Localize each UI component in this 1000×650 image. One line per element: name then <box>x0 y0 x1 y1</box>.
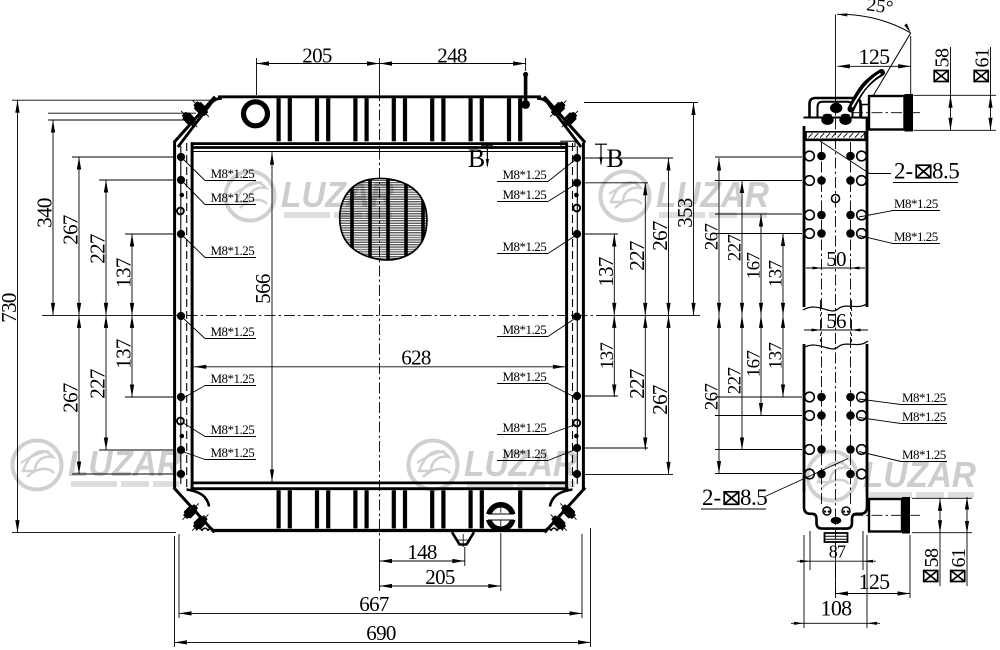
svg-text:137: 137 <box>597 343 618 370</box>
svg-text:628: 628 <box>401 346 431 370</box>
svg-text:M8*1.25: M8*1.25 <box>211 190 255 205</box>
svg-text:M8*1.25: M8*1.25 <box>211 243 255 258</box>
svg-text:87: 87 <box>829 542 846 562</box>
svg-text:148: 148 <box>407 540 437 564</box>
svg-text:267: 267 <box>702 384 723 411</box>
svg-text:205: 205 <box>425 565 455 589</box>
svg-text:58: 58 <box>931 48 953 68</box>
svg-text:227: 227 <box>725 235 746 262</box>
svg-text:M8*1.25: M8*1.25 <box>503 239 547 254</box>
svg-text:M8*1.25: M8*1.25 <box>503 167 547 182</box>
svg-text:58: 58 <box>921 548 943 568</box>
svg-text:353: 353 <box>673 198 697 228</box>
svg-text:227: 227 <box>86 234 110 264</box>
svg-text:227: 227 <box>725 368 746 395</box>
svg-text:267: 267 <box>648 221 672 251</box>
svg-text:2-: 2- <box>702 485 721 510</box>
svg-text:167: 167 <box>744 351 765 378</box>
svg-text:125: 125 <box>859 569 891 594</box>
svg-text:690: 690 <box>366 621 396 645</box>
svg-text:137: 137 <box>112 258 136 288</box>
svg-text:248: 248 <box>437 43 467 67</box>
svg-text:M8*1.25: M8*1.25 <box>503 187 547 202</box>
svg-text:167: 167 <box>744 253 765 280</box>
svg-text:267: 267 <box>59 215 83 245</box>
svg-text:340: 340 <box>33 198 57 228</box>
svg-text:667: 667 <box>359 592 389 616</box>
svg-text:M8*1.25: M8*1.25 <box>503 420 547 435</box>
svg-text:M8*1.25: M8*1.25 <box>211 166 255 181</box>
svg-text:267: 267 <box>702 224 723 251</box>
svg-text:227: 227 <box>625 369 649 399</box>
svg-text:61: 61 <box>971 49 993 68</box>
svg-text:61: 61 <box>948 549 970 568</box>
svg-text:137: 137 <box>112 339 136 369</box>
svg-text:M8*1.25: M8*1.25 <box>894 229 938 244</box>
svg-text:125: 125 <box>859 44 891 69</box>
svg-text:M8*1.25: M8*1.25 <box>503 446 547 461</box>
svg-text:137: 137 <box>766 343 787 370</box>
svg-text:8.5: 8.5 <box>932 159 959 184</box>
svg-text:267: 267 <box>59 383 83 413</box>
svg-text:2-: 2- <box>894 159 913 184</box>
svg-text:M8*1.25: M8*1.25 <box>503 322 547 337</box>
svg-text:8.5: 8.5 <box>740 485 767 510</box>
svg-text:205: 205 <box>302 43 332 67</box>
svg-text:M8*1.25: M8*1.25 <box>211 324 255 339</box>
svg-text:M8*1.25: M8*1.25 <box>902 447 946 462</box>
svg-text:M8*1.25: M8*1.25 <box>211 445 255 460</box>
svg-text:227: 227 <box>86 369 110 399</box>
svg-text:B: B <box>468 144 485 173</box>
svg-text:227: 227 <box>625 241 649 271</box>
svg-text:56: 56 <box>826 309 846 333</box>
svg-text:267: 267 <box>648 385 672 415</box>
svg-text:566: 566 <box>251 274 275 304</box>
svg-text:M8*1.25: M8*1.25 <box>503 369 547 384</box>
svg-text:M8*1.25: M8*1.25 <box>902 390 946 405</box>
svg-text:B: B <box>606 144 623 173</box>
svg-text:M8*1.25: M8*1.25 <box>894 196 938 211</box>
svg-text:108: 108 <box>821 596 853 621</box>
svg-text:M8*1.25: M8*1.25 <box>211 371 255 386</box>
svg-text:730: 730 <box>0 293 21 323</box>
svg-text:M8*1.25: M8*1.25 <box>902 409 946 424</box>
svg-text:LUZAR: LUZAR <box>68 443 181 484</box>
svg-text:50: 50 <box>826 247 846 271</box>
svg-text:137: 137 <box>766 261 787 288</box>
svg-text:M8*1.25: M8*1.25 <box>211 422 255 437</box>
svg-text:137: 137 <box>594 257 618 287</box>
